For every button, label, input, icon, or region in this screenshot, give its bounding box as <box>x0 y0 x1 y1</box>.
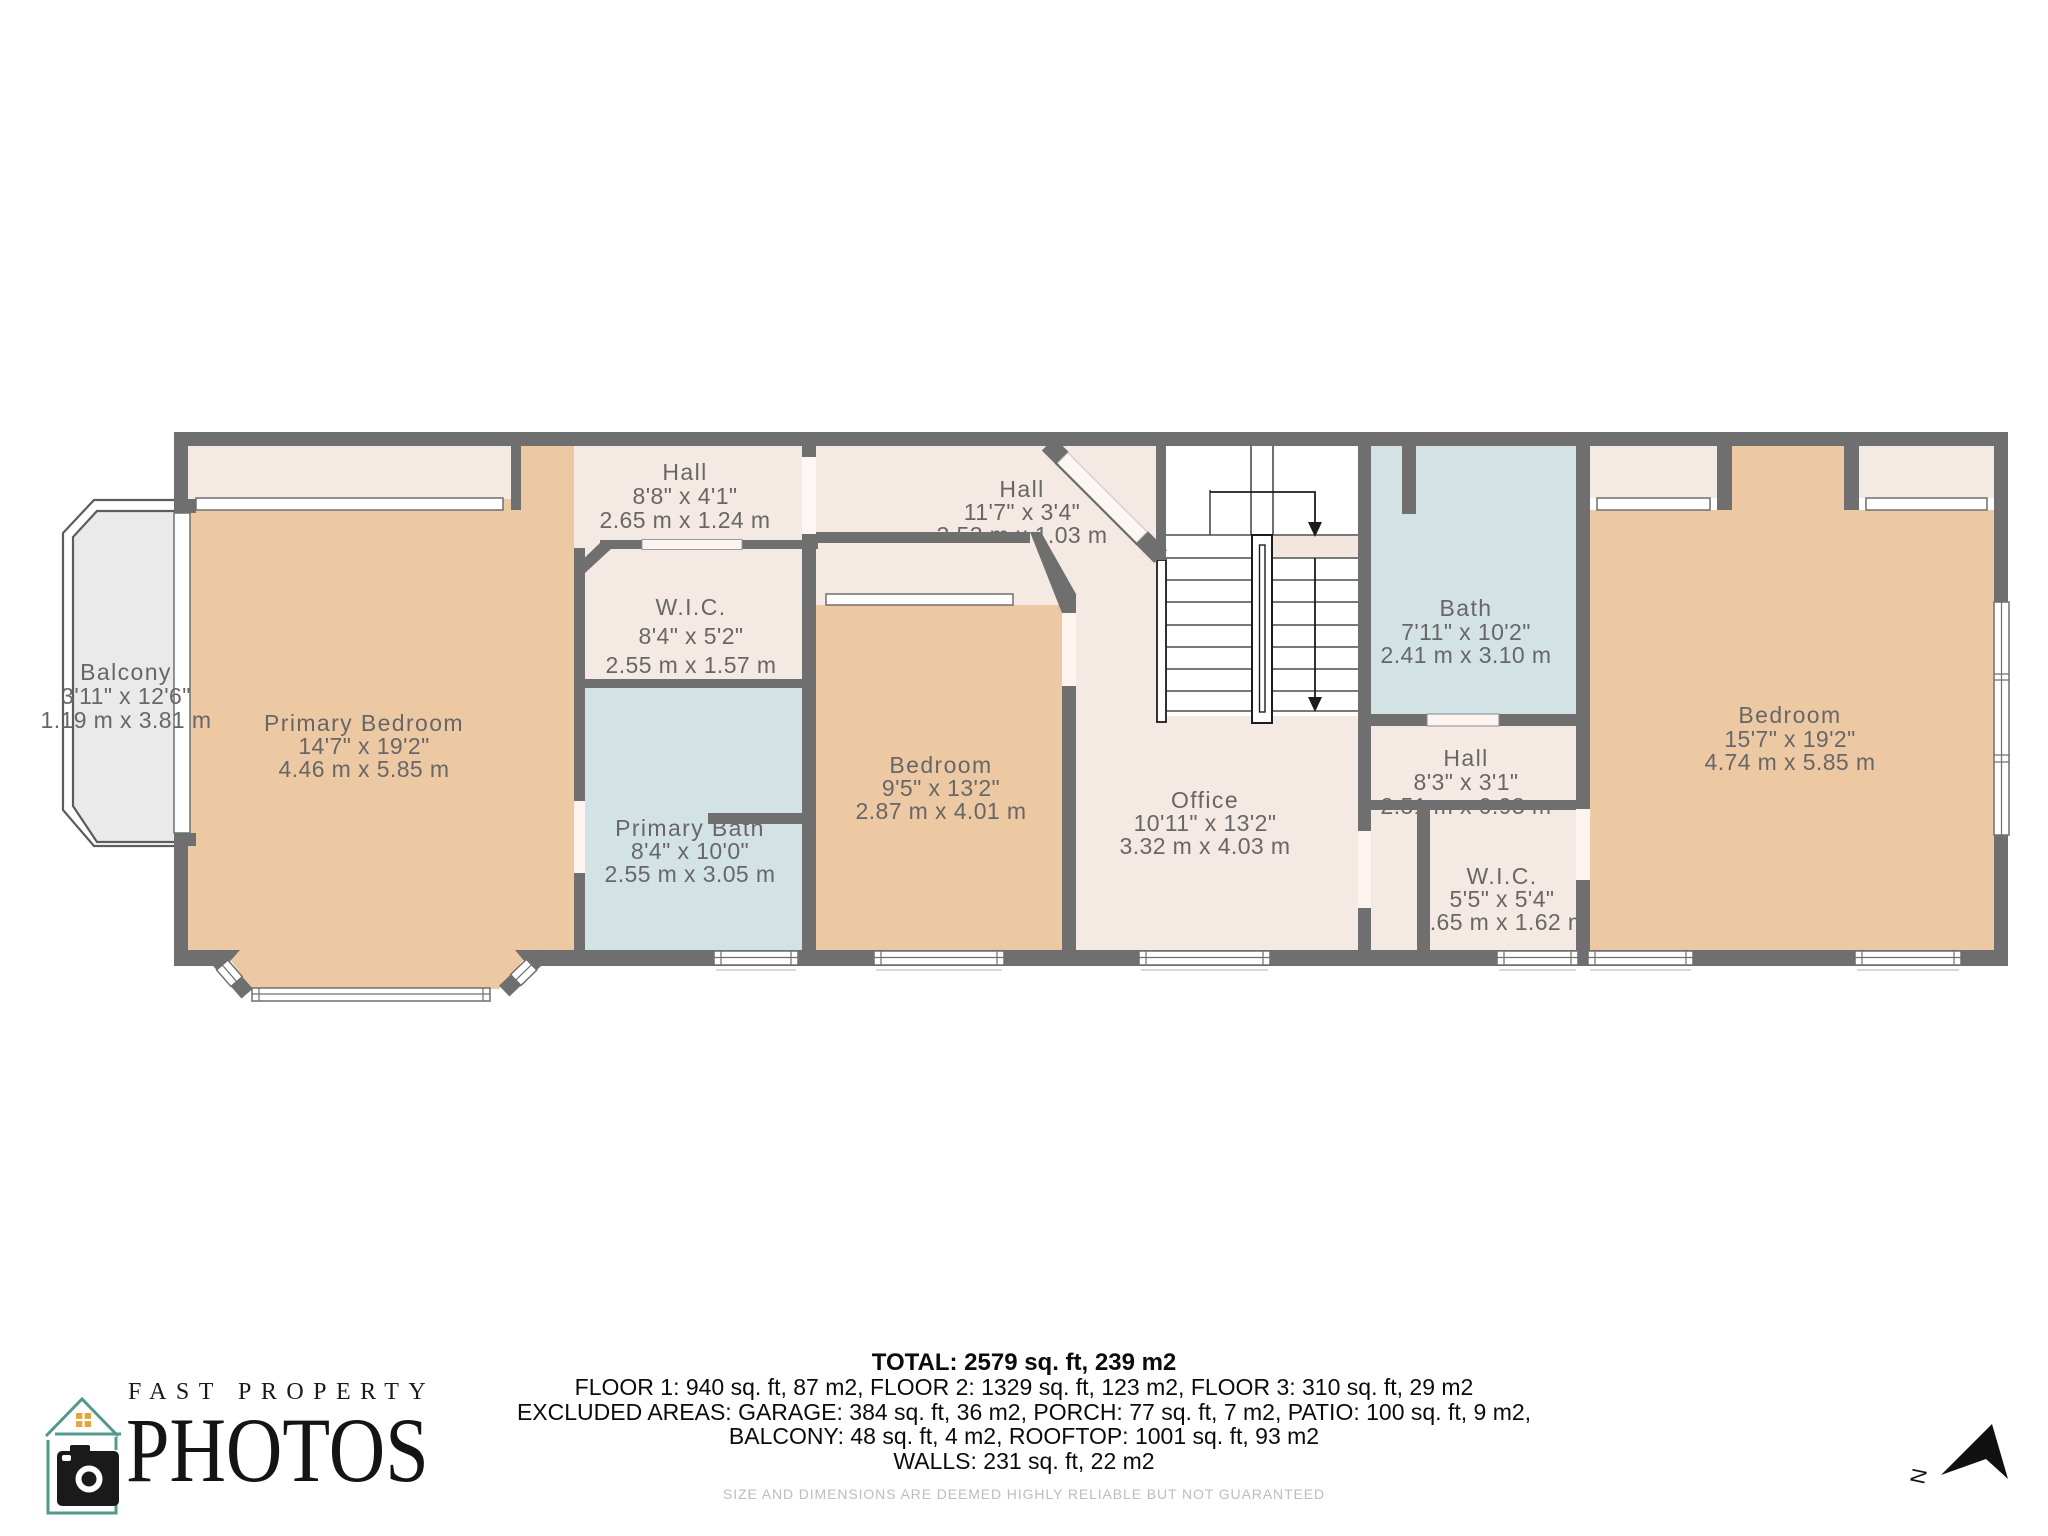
svg-text:Balcony: Balcony <box>80 659 172 685</box>
svg-text:2.87 m x 4.01 m: 2.87 m x 4.01 m <box>856 798 1027 824</box>
svg-text:3'11" x 12'6": 3'11" x 12'6" <box>61 683 191 709</box>
svg-text:BALCONY: 48 sq. ft, 4 m2, ROOF: BALCONY: 48 sq. ft, 4 m2, ROOFTOP: 1001 … <box>729 1423 1319 1449</box>
svg-text:TOTAL: 2579 sq. ft, 239 m2: TOTAL: 2579 sq. ft, 239 m2 <box>872 1349 1177 1376</box>
svg-text:8'8" x 4'1": 8'8" x 4'1" <box>633 483 738 509</box>
svg-text:2.65 m x 1.24 m: 2.65 m x 1.24 m <box>600 507 771 533</box>
svg-text:WALLS: 231 sq. ft, 22 m2: WALLS: 231 sq. ft, 22 m2 <box>893 1448 1154 1474</box>
svg-text:W.I.C.: W.I.C. <box>655 594 726 620</box>
svg-text:1.65 m x 1.62 m: 1.65 m x 1.62 m <box>1417 909 1588 935</box>
svg-text:8'4" x 5'2": 8'4" x 5'2" <box>639 623 744 649</box>
svg-text:PHOTOS: PHOTOS <box>126 1400 429 1501</box>
svg-text:Bath: Bath <box>1440 595 1493 621</box>
svg-text:2.55 m x 3.05 m: 2.55 m x 3.05 m <box>605 861 776 887</box>
svg-text:EXCLUDED AREAS: GARAGE: 384 sq: EXCLUDED AREAS: GARAGE: 384 sq. ft, 36 m… <box>517 1399 1531 1425</box>
svg-text:N: N <box>1906 1466 1932 1486</box>
svg-text:1.19 m x 3.81 m: 1.19 m x 3.81 m <box>41 707 212 733</box>
svg-text:SIZE AND DIMENSIONS ARE DEEMED: SIZE AND DIMENSIONS ARE DEEMED HIGHLY RE… <box>723 1486 1325 1502</box>
svg-text:4.74 m x 5.85 m: 4.74 m x 5.85 m <box>1705 749 1876 775</box>
svg-text:4.46 m x 5.85 m: 4.46 m x 5.85 m <box>279 756 450 782</box>
svg-text:2.41 m x 3.10 m: 2.41 m x 3.10 m <box>1381 642 1552 668</box>
svg-text:8'3" x 3'1": 8'3" x 3'1" <box>1414 769 1519 795</box>
svg-text:2.55 m x 1.57 m: 2.55 m x 1.57 m <box>606 652 777 678</box>
svg-text:Hall: Hall <box>662 459 707 485</box>
svg-text:FLOOR 1: 940 sq. ft, 87 m2, FL: FLOOR 1: 940 sq. ft, 87 m2, FLOOR 2: 132… <box>575 1374 1474 1400</box>
svg-text:Bedroom: Bedroom <box>1738 702 1841 728</box>
svg-text:3.32 m x 4.03 m: 3.32 m x 4.03 m <box>1120 833 1291 859</box>
svg-text:Hall: Hall <box>1443 745 1488 771</box>
